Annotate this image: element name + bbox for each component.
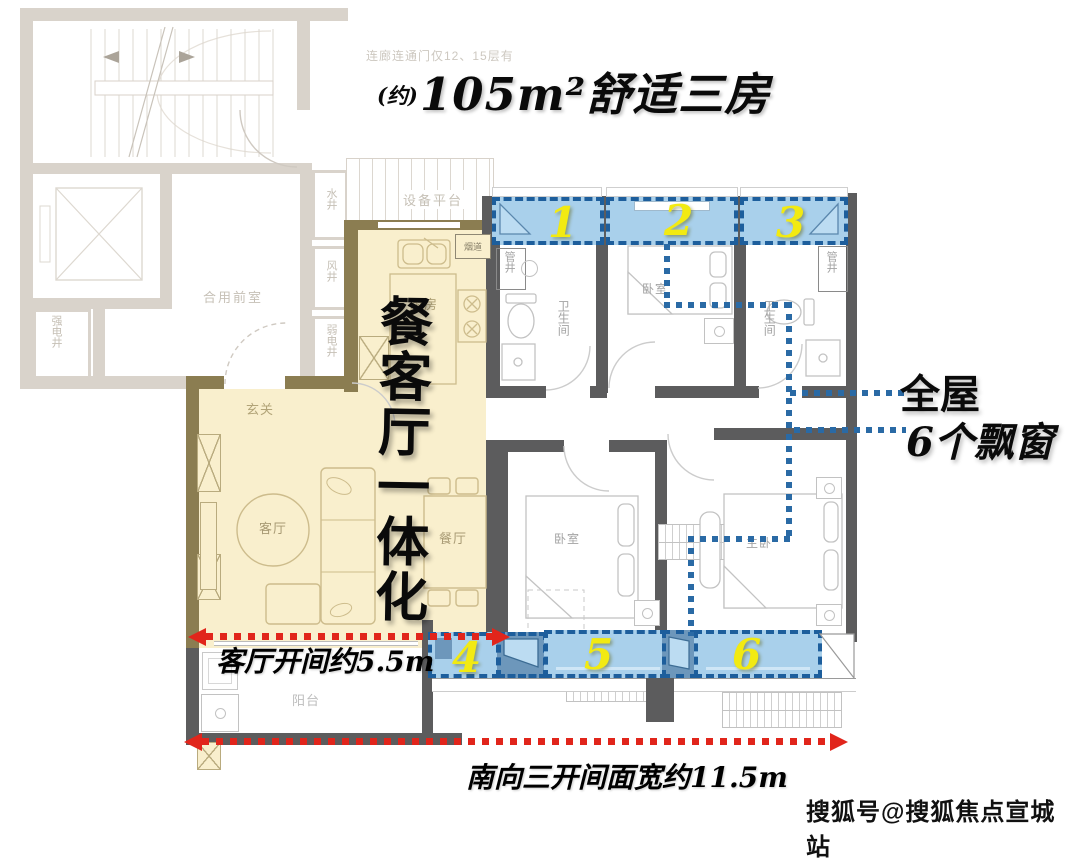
callout-line [664, 302, 792, 308]
bay-number-4: 4 [452, 637, 481, 679]
callout-line [786, 302, 792, 542]
bay-number-5: 5 [584, 634, 613, 676]
bay-number-2: 2 [664, 200, 693, 242]
callout-line [664, 244, 670, 308]
callout-six-bays: 6个飘窗 [906, 410, 1054, 468]
bay-number-3: 3 [776, 202, 805, 244]
watermark: 搜狐号@搜狐焦点宣城站 [806, 792, 1080, 862]
feature-text-vertical: 餐客厅一体化 [369, 294, 430, 625]
callout-line [794, 427, 906, 433]
dimension-arrowhead [188, 628, 206, 646]
dimension-arrowhead [492, 628, 510, 646]
window-sill [492, 187, 602, 197]
bay-window-seat [662, 630, 698, 678]
floor-plan-scene: 连廊连通门仅12、15层有 (约) 105m²舒适三房 合用前室 强电井 水井 … [0, 0, 1080, 833]
window-sill [740, 187, 848, 197]
callout-line [688, 536, 694, 636]
window-sill [432, 678, 856, 692]
corner-window [818, 632, 858, 680]
callout-line [688, 536, 790, 542]
bay-number-1: 1 [548, 202, 577, 244]
wall-segment [646, 678, 674, 722]
dimension-arrowhead [830, 733, 848, 751]
dimension-arrowhead [184, 733, 202, 751]
dimension-line-south [202, 738, 832, 745]
callout-line [790, 390, 904, 396]
bay-number-6: 6 [732, 634, 761, 676]
dimension-line-living [206, 633, 492, 640]
dimension-label-south-width: 南向三开间面宽约11.5m [466, 756, 788, 796]
dimension-label-living-width: 客厅开间约5.5m [216, 640, 434, 680]
